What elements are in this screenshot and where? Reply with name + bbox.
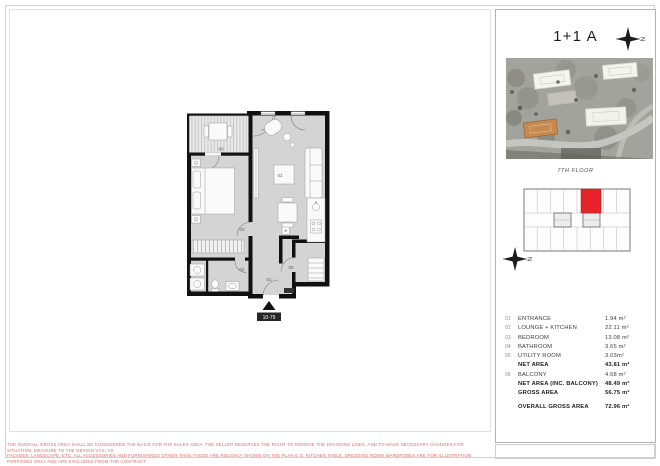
area-table-row: GROSS AREA 56.75 m² xyxy=(505,390,649,399)
area-table-row: OVERALL GROSS AREA 72.96 m² xyxy=(505,404,649,413)
area-table-row: 06 BALCONY 4.68 m² xyxy=(505,372,649,381)
room-label-bedroom: 03 xyxy=(239,227,245,232)
floorplan-sheet: { "header": { "title": "1+1 A" }, "site_… xyxy=(0,0,660,466)
legal-disclaimer: THE OVERALL GROSS AREA SHALL BE CONSIDER… xyxy=(7,442,489,464)
floor-plan-drawing: 06 02 03 04 05 01 10-79 xyxy=(185,110,335,324)
area-row-value: 4.68 m² xyxy=(605,372,649,378)
area-row-value: 1.94 m² xyxy=(605,316,649,322)
area-row-label: GROSS AREA xyxy=(518,390,605,396)
area-table-row: 03 BEDROOM 13.08 m² xyxy=(505,335,649,344)
area-table-row: NET AREA (INC. BALCONY) 48.49 m² xyxy=(505,381,649,390)
area-row-label: UTILITY ROOM xyxy=(518,353,605,359)
apartment-floor-plan: 06 02 03 04 05 01 10-79 xyxy=(185,110,335,324)
area-row-value: 72.96 m² xyxy=(605,404,649,410)
area-table-row: 04 BATHROOM 3.65 m² xyxy=(505,344,649,353)
area-row-label: LOUNGE + KITCHEN xyxy=(518,325,605,331)
area-row-value: 3.65 m² xyxy=(605,344,649,350)
area-row-label: BEDROOM xyxy=(518,335,605,341)
disclaimer-line-2: FACADES, LANDSCAPE, ETC. ALL ACCESSORIES… xyxy=(7,453,489,464)
compass-north-icon: N xyxy=(615,26,647,52)
area-row-label: NET AREA xyxy=(518,362,605,368)
area-row-number: 02 xyxy=(505,325,518,331)
highlighted-unit xyxy=(581,189,601,213)
room-label-entrance: 01 xyxy=(266,277,272,282)
floor-key-plan xyxy=(522,186,632,258)
area-row-value: 48.49 m² xyxy=(605,381,649,387)
footer-box xyxy=(495,444,656,459)
area-row-number: 05 xyxy=(505,353,518,359)
area-row-number: 01 xyxy=(505,316,518,322)
compass-north-label: N xyxy=(639,37,645,41)
area-row-number: 06 xyxy=(505,372,518,378)
floor-level-label: 7TH FLOOR xyxy=(496,168,655,174)
entrance-arrow-icon xyxy=(263,301,276,310)
disclaimer-line-1: THE OVERALL GROSS AREA SHALL BE CONSIDER… xyxy=(7,442,489,453)
area-row-label: BATHROOM xyxy=(518,344,605,350)
area-row-number: 03 xyxy=(505,335,518,341)
compass-north-icon: N xyxy=(502,246,534,272)
area-row-value: 43.81 m² xyxy=(605,362,649,368)
unit-badge: 10-79 xyxy=(263,315,276,321)
area-row-label: BALCONY xyxy=(518,372,605,378)
area-row-label: ENTRANCE xyxy=(518,316,605,322)
compass-north-label: N xyxy=(526,257,532,261)
room-label-bathroom: 04 xyxy=(239,267,245,272)
area-table-row: 01 ENTRANCE 1.94 m² xyxy=(505,316,649,325)
room-label-balcony: 06 xyxy=(218,147,224,152)
info-panel: 1+1 A N xyxy=(495,9,656,443)
area-row-label: NET AREA (INC. BALCONY) xyxy=(518,381,605,387)
area-row-number: 04 xyxy=(505,344,518,350)
site-aerial-image xyxy=(506,58,653,159)
area-table-row: NET AREA 43.81 m² xyxy=(505,362,649,371)
room-label-utility: 05 xyxy=(288,265,294,270)
area-row-value: 13.08 m² xyxy=(605,335,649,341)
room-label-lounge-kitchen: 02 xyxy=(277,173,283,178)
area-row-label: OVERALL GROSS AREA xyxy=(518,404,605,410)
area-row-value: 22.11 m² xyxy=(605,325,649,331)
area-table: 01 ENTRANCE 1.94 m² 02 LOUNGE + KITCHEN … xyxy=(505,316,649,413)
area-row-value: 56.75 m² xyxy=(605,390,649,396)
area-row-value: 3.03m² xyxy=(605,353,649,359)
area-table-row: 02 LOUNGE + KITCHEN 22.11 m² xyxy=(505,325,649,334)
